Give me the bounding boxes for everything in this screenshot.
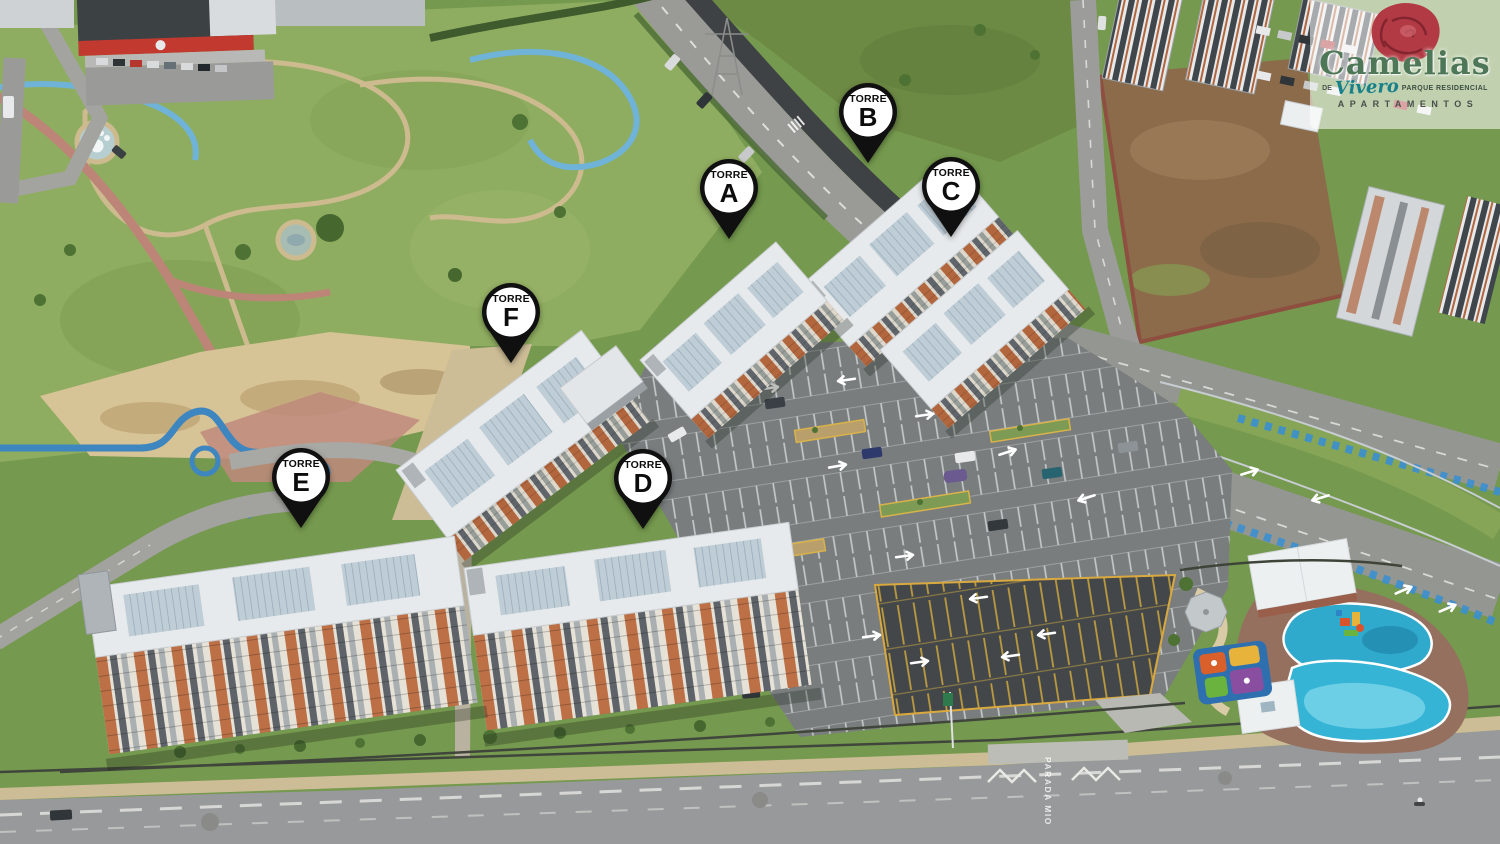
bus-stop-road-marking: PARADA MIO [1043,757,1053,826]
brand-tagline: PARQUE RESIDENCIAL [1402,85,1488,92]
brand-de: DE [1322,85,1332,92]
pin-letter: F [503,305,519,330]
torre-d-pin[interactable]: TORRE D [613,448,673,530]
aerial-site-map: TORRE A TORRE B TORRE C TORRE D TORRE E [0,0,1500,844]
aerial-photo [0,0,1500,844]
pin-letter: D [634,471,653,496]
brand-subtitle: APARTAMENTOS [1332,99,1479,109]
pin-letter: B [859,105,878,130]
pin-letter: C [942,179,961,204]
gazebo [1185,592,1227,632]
brand-name: Camelias [1319,47,1490,79]
pin-letter: A [720,181,739,206]
torre-c-pin[interactable]: TORRE C [921,156,981,238]
pin-letter: E [292,470,309,495]
playground [1192,640,1273,706]
torre-a-pin[interactable]: TORRE A [699,158,759,240]
torre-b-pin[interactable]: TORRE B [838,82,898,164]
torre-e-pin[interactable]: TORRE E [271,447,331,529]
brand-logo-card: Camelias DE Vivero PARQUE RESIDENCIAL AP… [1310,0,1500,129]
dirt-field [1100,58,1345,342]
brand-script: Vivero [1335,79,1399,97]
torre-f-pin[interactable]: TORRE F [481,282,541,364]
